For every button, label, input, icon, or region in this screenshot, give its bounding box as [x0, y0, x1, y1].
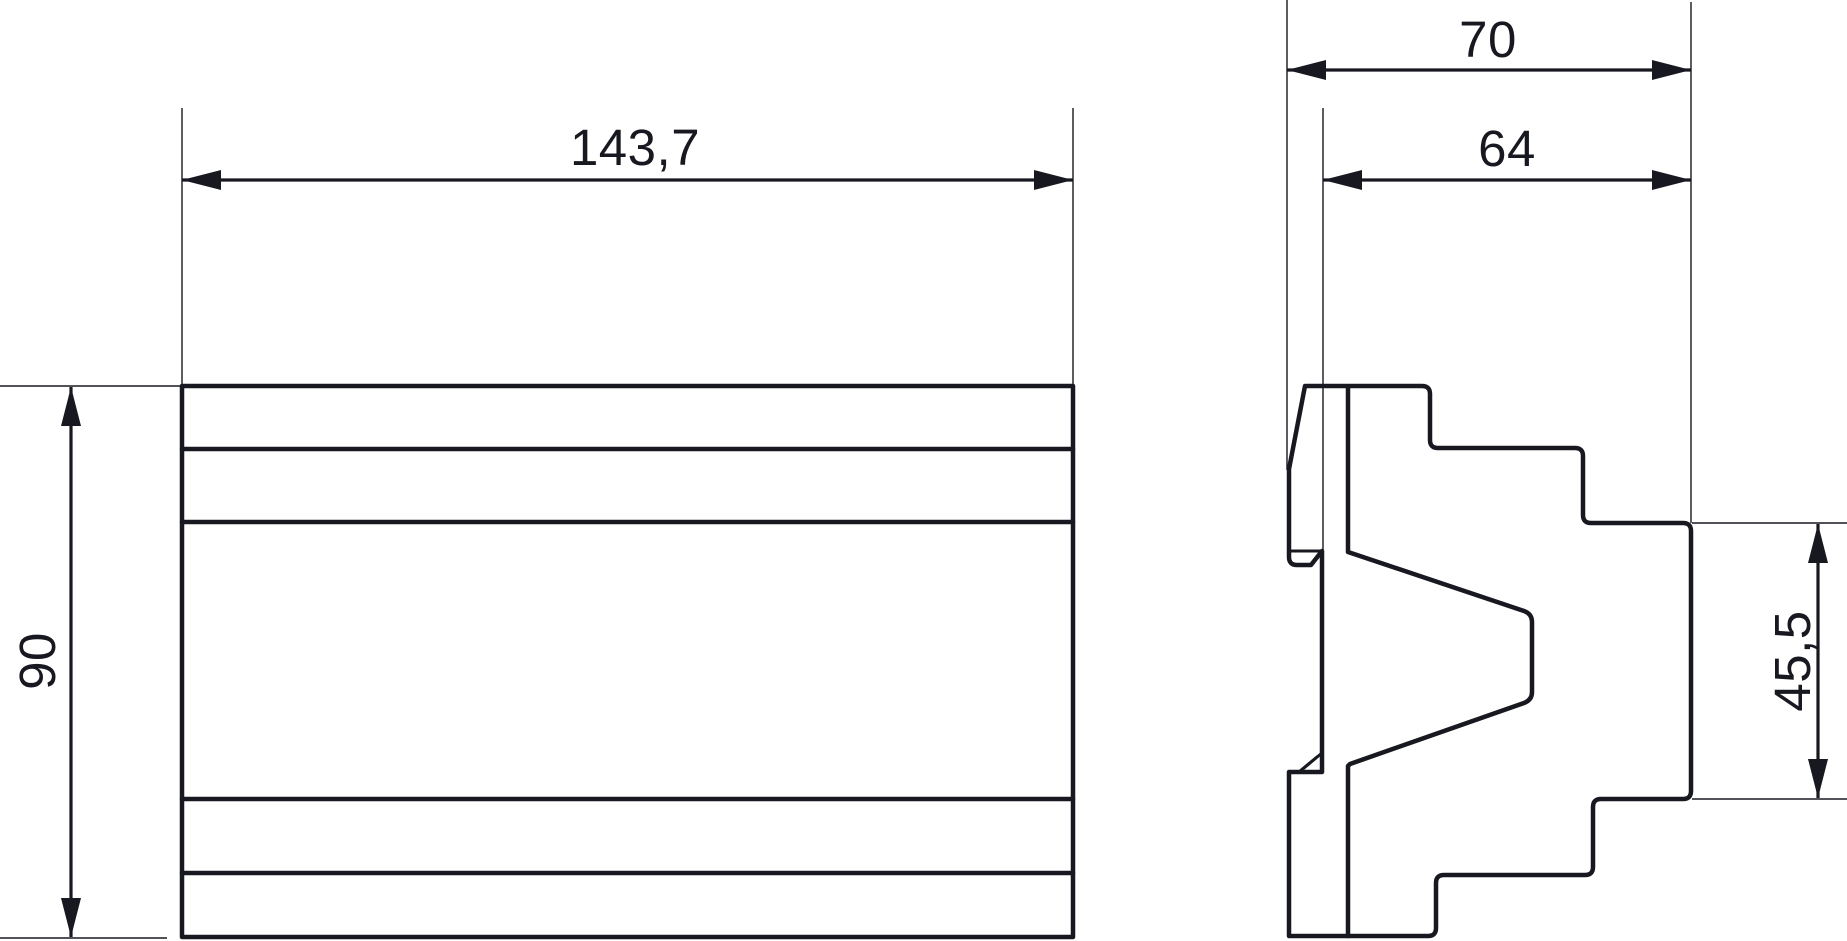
- front-view: [182, 386, 1073, 937]
- height-dimension: 90: [0, 386, 182, 938]
- side-view-din-rail-channel: [1348, 388, 1532, 936]
- depth-body-arrow-left: [1323, 170, 1362, 190]
- width-dimension: 143,7: [182, 108, 1073, 386]
- depth-total-dimension-label: 70: [1459, 11, 1517, 68]
- front-view-outline: [182, 386, 1073, 937]
- width-arrow-right: [1034, 170, 1073, 190]
- height-dimension-label: 90: [9, 632, 66, 690]
- depth-total-arrow-left: [1287, 60, 1326, 80]
- clip-jaw-detail-line: [1304, 757, 1317, 768]
- front-section-arrow-bottom: [1808, 759, 1828, 798]
- front-section-height-dimension-label: 45,5: [1764, 610, 1821, 711]
- width-dimension-label: 143,7: [570, 119, 700, 176]
- width-arrow-left: [182, 170, 221, 190]
- depth-body-dimension: 64: [1323, 108, 1691, 551]
- depth-body-arrow-right: [1652, 170, 1691, 190]
- depth-body-dimension-label: 64: [1478, 120, 1536, 177]
- technical-dimension-drawing: 143,7 90 70 64: [0, 0, 1847, 941]
- side-view: [1289, 386, 1691, 936]
- front-section-height-dimension: 45,5: [1692, 523, 1847, 799]
- height-arrow-top: [61, 387, 81, 426]
- depth-total-arrow-right: [1652, 60, 1691, 80]
- height-arrow-bottom: [61, 898, 81, 937]
- front-section-arrow-top: [1808, 524, 1828, 563]
- dimension-drawing-canvas: 143,7 90 70 64: [0, 0, 1847, 941]
